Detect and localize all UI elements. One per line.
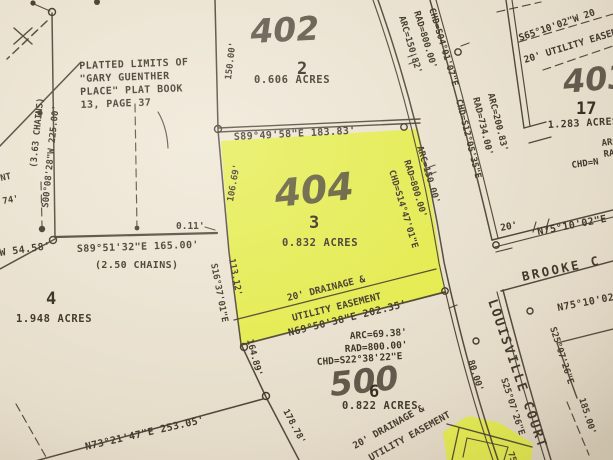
curve-lot17-rad-fragment: RAD= (603, 147, 613, 160)
lot4-area: 1.948 ACRES (16, 313, 92, 325)
lot6-number: 6 (369, 382, 379, 402)
pin-marker-top-left (30, 0, 35, 5)
lot3-area: 0.832 ACRES (282, 237, 358, 249)
lot2-house-number: 402 (248, 8, 320, 51)
lot2-area: 0.606 ACRES (254, 74, 330, 86)
lot17-house-number: 403 (560, 57, 613, 101)
pin-marker-lot4 (39, 226, 45, 232)
distance-gap: 0.11' (176, 221, 205, 232)
lot3-house-number: 404 (271, 164, 355, 216)
pin-marker-old-line (135, 226, 140, 231)
plat-map: PLATTED LIMITS OF "GARY GUENTHER PLACE" … (0, 0, 613, 460)
lot3-number: 3 (309, 213, 319, 233)
lot6-house-number: 500 (328, 358, 401, 404)
chains-label-lot4: (2.50 CHAINS) (95, 260, 178, 271)
lot17-number: 17 (576, 99, 596, 119)
lot4-number: 4 (46, 289, 56, 309)
plat-map-scan: PLATTED LIMITS OF "GARY GUENTHER PLACE" … (0, 0, 613, 460)
curve-lot17-arc-fragment: ARC= (601, 136, 613, 149)
